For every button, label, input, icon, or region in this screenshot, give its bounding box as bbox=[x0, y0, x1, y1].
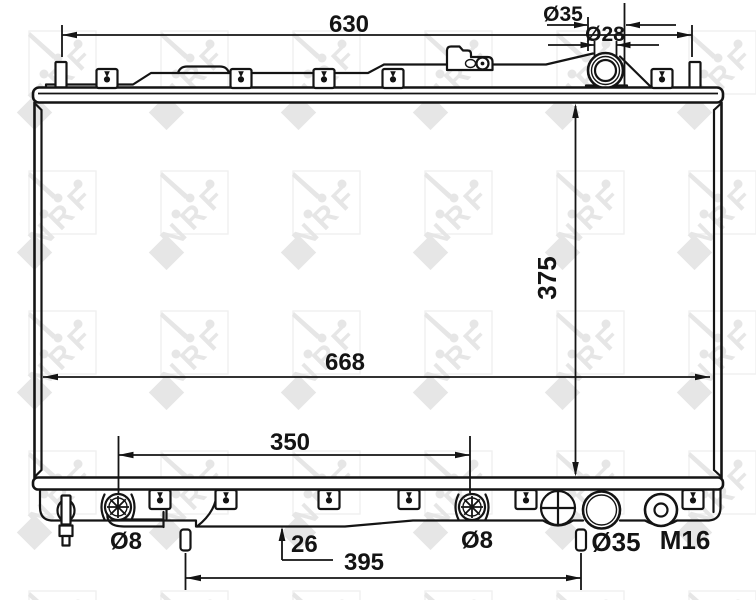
dim-label-26: 26 bbox=[291, 531, 318, 558]
dim-label-neck-inner: Ø28 bbox=[585, 23, 625, 46]
bottom-plate bbox=[33, 478, 723, 490]
drain-plug-nub bbox=[60, 526, 73, 537]
label-left-fitting: Ø8 bbox=[110, 528, 142, 555]
filler-neck bbox=[588, 53, 623, 88]
technical-drawing-canvas: NRF bbox=[0, 0, 756, 600]
left-mount-post bbox=[56, 62, 67, 88]
bracket-slot bbox=[466, 60, 476, 68]
bracket-hole-center bbox=[481, 62, 485, 66]
outlet-cross-port bbox=[541, 491, 575, 525]
dim-label-395: 395 bbox=[344, 549, 384, 576]
label-right-fitting: Ø8 bbox=[461, 527, 493, 554]
filler-neck-outer-ring bbox=[588, 53, 623, 88]
dim-label-350: 350 bbox=[270, 429, 310, 456]
right-mount-pin bbox=[576, 530, 586, 551]
dim-label-neck-outer: Ø35 bbox=[543, 3, 583, 26]
mounting-clip bbox=[516, 490, 537, 509]
label-outlet: Ø35 bbox=[591, 527, 640, 557]
mounting-clip bbox=[150, 490, 171, 509]
mounting-clip bbox=[683, 490, 704, 509]
m16-drain-boss bbox=[645, 494, 677, 526]
dim-label-375: 375 bbox=[532, 256, 562, 299]
mounting-clip bbox=[319, 490, 340, 509]
mounting-clip bbox=[652, 69, 673, 88]
mounting-clip bbox=[231, 69, 252, 88]
right-mount-post bbox=[690, 62, 701, 88]
radiator-drawing: NRF bbox=[0, 0, 756, 600]
mounting-clip bbox=[314, 69, 335, 88]
top-plate bbox=[33, 88, 723, 103]
dim-label-630: 630 bbox=[329, 11, 369, 38]
mounting-clip bbox=[399, 490, 420, 509]
mounting-clip bbox=[97, 69, 118, 88]
left-mount-pin bbox=[181, 530, 191, 551]
mounting-clip bbox=[383, 69, 404, 88]
m16-outer bbox=[645, 494, 677, 526]
drain-plug-bar bbox=[62, 496, 71, 525]
o35-outer bbox=[583, 492, 620, 529]
mounting-clip bbox=[216, 490, 237, 509]
drain-plug-tip bbox=[63, 536, 70, 546]
outlet-o35-port bbox=[583, 492, 620, 529]
label-drain-thread: M16 bbox=[660, 525, 711, 555]
dim-label-668: 668 bbox=[325, 349, 365, 376]
